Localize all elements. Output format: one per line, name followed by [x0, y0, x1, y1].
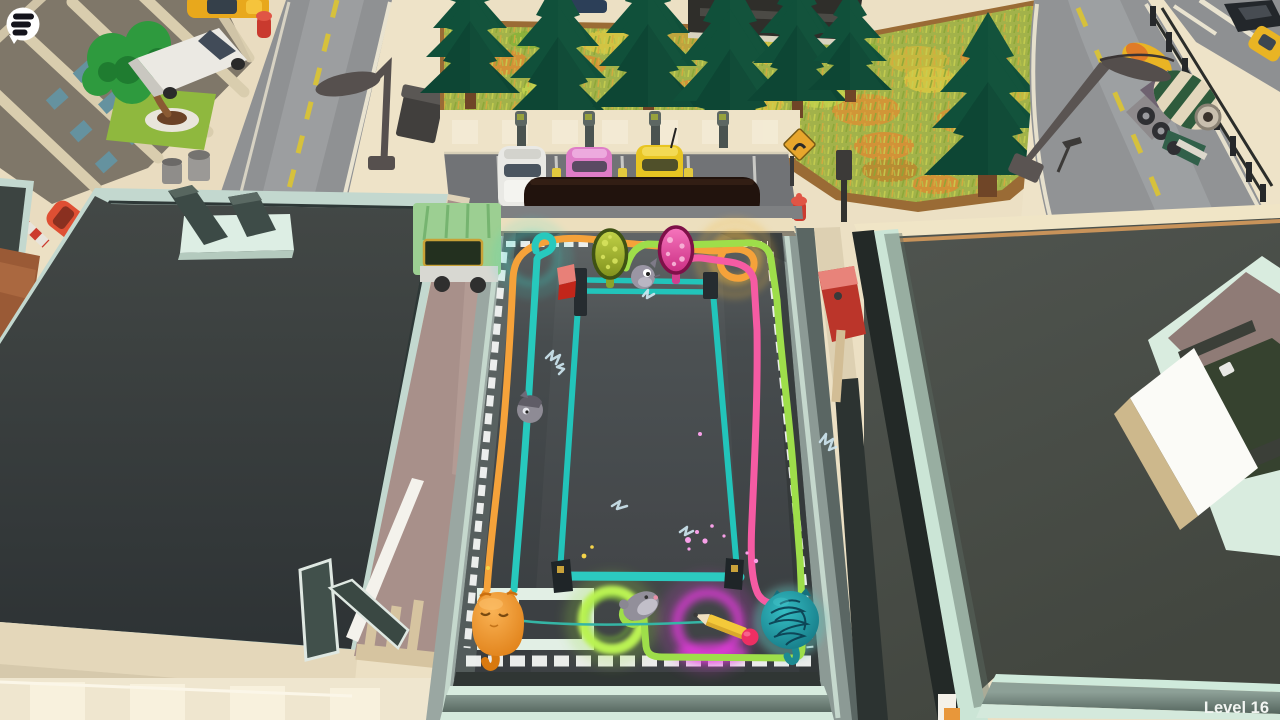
svg-text:Level 16: Level 16	[1204, 699, 1269, 717]
